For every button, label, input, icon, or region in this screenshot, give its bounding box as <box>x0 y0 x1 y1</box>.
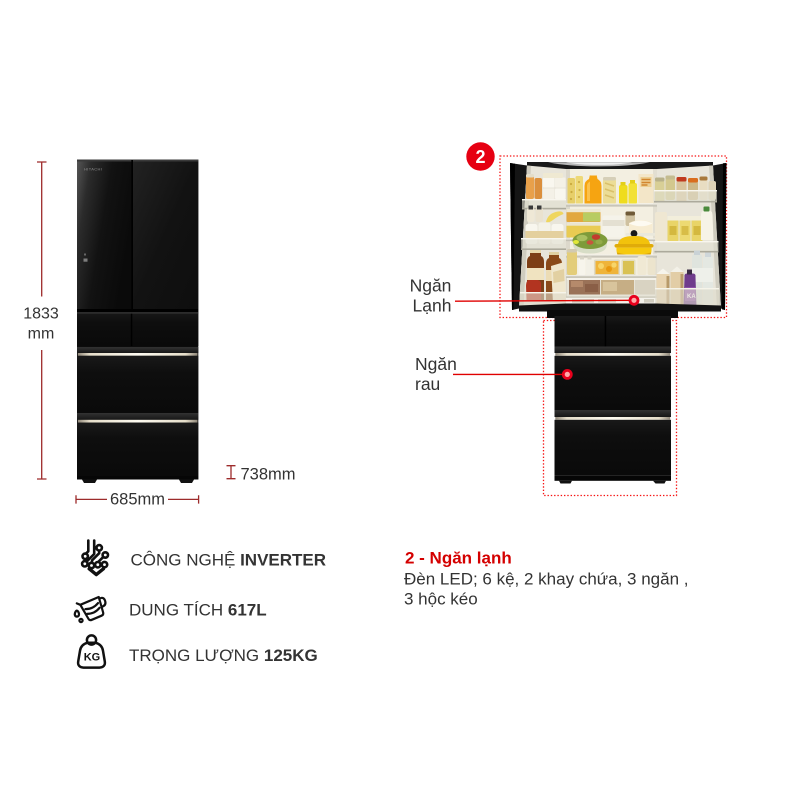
svg-text:rau: rau <box>415 374 440 394</box>
svg-text:KG: KG <box>84 652 101 664</box>
svg-text:738mm: 738mm <box>241 466 296 484</box>
svg-text:Ngăn: Ngăn <box>410 276 452 296</box>
svg-text:685mm: 685mm <box>110 491 165 509</box>
svg-text:2: 2 <box>475 147 485 167</box>
svg-text:TRỌNG LƯỢNG 125KG: TRỌNG LƯỢNG 125KG <box>129 646 318 665</box>
svg-text:mm: mm <box>28 326 55 343</box>
svg-text:Lạnh: Lạnh <box>413 296 452 316</box>
svg-text:DUNG TÍCH 617L: DUNG TÍCH 617L <box>129 601 267 620</box>
svg-text:Ngăn: Ngăn <box>415 354 457 374</box>
svg-text:CÔNG NGHỆ INVERTER: CÔNG NGHỆ INVERTER <box>131 550 327 569</box>
svg-text:Đèn LED; 6 kệ, 2 khay chứa, 3: Đèn LED; 6 kệ, 2 khay chứa, 3 ngăn , <box>404 569 689 588</box>
svg-text:3 hộc kéo: 3 hộc kéo <box>404 590 478 609</box>
svg-text:HITACHI: HITACHI <box>84 167 102 172</box>
svg-text:1833: 1833 <box>23 306 59 323</box>
svg-text:2 - Ngăn lạnh: 2 - Ngăn lạnh <box>405 548 512 567</box>
